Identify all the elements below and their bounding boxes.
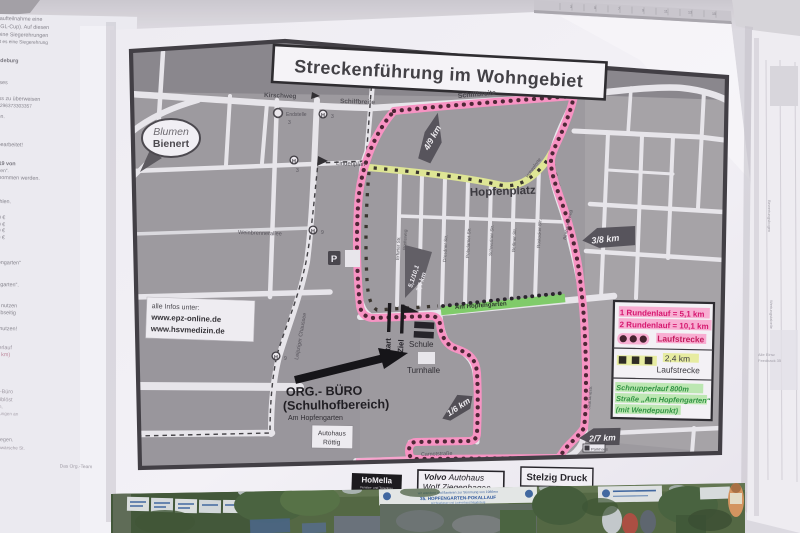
- svg-text:Kirschweg: Kirschweg: [264, 92, 297, 100]
- svg-text:Turnhalle: Turnhalle: [407, 366, 441, 375]
- svg-text:Parkhaus: Parkhaus: [591, 447, 608, 452]
- svg-text:ren.: ren.: [0, 114, 5, 120]
- svg-text:Schnupperlauf 800m: Schnupperlauf 800m: [616, 383, 689, 394]
- svg-text:Röttig: Röttig: [323, 439, 341, 446]
- svg-text:Stelzig Druck: Stelzig Druck: [526, 472, 588, 484]
- svg-text:Schule: Schule: [409, 340, 434, 349]
- svg-text:Alle Einw.: Alle Einw.: [758, 352, 775, 357]
- svg-text:(Schulhofbereich): (Schulhofbereich): [283, 397, 389, 413]
- svg-text:nlagen,: nlagen,: [0, 404, 3, 410]
- svg-text:7: 7: [618, 7, 620, 11]
- svg-text:beschluss zu überweisen: beschluss zu überweisen: [0, 96, 40, 103]
- svg-text:3: 3: [570, 5, 572, 9]
- svg-text:3: 3: [331, 114, 334, 120]
- svg-text:Das Org.-Team: Das Org.-Team: [60, 463, 93, 470]
- svg-text:genommen werden.: genommen werden.: [0, 175, 40, 182]
- svg-text:Feedback 35: Feedback 35: [758, 358, 782, 363]
- svg-text:Ch.) nutzen: Ch.) nutzen: [0, 303, 17, 310]
- svg-text:(MD, IGL-Cup). Auf diesen: (MD, IGL-Cup). Auf diesen: [0, 24, 49, 31]
- svg-text:(mit Wendepunkt): (mit Wendepunkt): [616, 405, 679, 415]
- svg-text:nupperlauf: nupperlauf: [0, 345, 12, 352]
- svg-text:13: 13: [688, 11, 692, 15]
- svg-text:Autohaus: Autohaus: [318, 430, 347, 437]
- svg-text:ORG.- BÜRO: ORG.- BÜRO: [286, 383, 363, 399]
- svg-text:15: 15: [712, 12, 716, 16]
- svg-text:2/7 km: 2/7 km: [588, 432, 617, 443]
- svg-text:Endstelle: Endstelle: [286, 112, 307, 118]
- svg-text:Laufstrecke: Laufstrecke: [657, 364, 701, 375]
- svg-text:1 Rundenlauf = 5,1 km: 1 Rundenlauf = 5,1 km: [620, 308, 705, 319]
- svg-text:zur Laufteilnahme eine: zur Laufteilnahme eine: [0, 16, 42, 23]
- svg-text:H: H: [311, 229, 315, 235]
- svg-text:d möblöst: d möblöst: [0, 397, 13, 404]
- svg-text:11: 11: [664, 10, 668, 14]
- svg-text:g bearbeitet!: g bearbeitet!: [0, 142, 24, 149]
- svg-text:se zu legen.: se zu legen.: [0, 437, 13, 444]
- svg-text:Lindenplan: Lindenplan: [336, 161, 366, 168]
- svg-text:005327296373303357: 005327296373303357: [0, 103, 32, 110]
- svg-text:Ziel: Ziel: [396, 339, 406, 353]
- svg-text:Wertungstabelle: Wertungstabelle: [769, 300, 774, 330]
- svg-text:2,4 km: 2,4 km: [665, 353, 690, 364]
- svg-text:Laufstrecke: Laufstrecke: [657, 333, 705, 344]
- svg-text:H: H: [321, 113, 325, 119]
- svg-text:d benutzen!: d benutzen!: [0, 326, 18, 333]
- svg-text:keine Siegerehrungen: keine Siegerehrungen: [0, 32, 48, 39]
- svg-text:,00 €: ,00 €: [0, 228, 5, 234]
- svg-text:Carnotstraße: Carnotstraße: [421, 451, 453, 458]
- svg-text:pfengarten“.: pfengarten“.: [0, 282, 19, 289]
- svg-text:smeldungen an: smeldungen an: [0, 411, 19, 417]
- svg-text:Bienert: Bienert: [153, 138, 190, 150]
- svg-text:H: H: [292, 159, 296, 165]
- svg-text:Org.-Büro: Org.-Büro: [0, 389, 13, 396]
- svg-text:3: 3: [288, 120, 291, 126]
- svg-text:2019 von: 2019 von: [0, 161, 16, 168]
- svg-text:Hopfenplatz: Hopfenplatz: [470, 185, 536, 199]
- svg-text:H: H: [274, 355, 278, 361]
- svg-text:2 Rundenlauf = 10,1 km: 2 Rundenlauf = 10,1 km: [619, 320, 708, 331]
- svg-text:zahlen.: zahlen.: [0, 199, 11, 205]
- svg-text:,00 €: ,00 €: [0, 235, 5, 241]
- svg-text:9: 9: [321, 230, 324, 236]
- svg-text:Bewertungsbogen: Bewertungsbogen: [767, 200, 772, 232]
- svg-text:HoMella: HoMella: [361, 475, 393, 485]
- svg-text:9: 9: [284, 356, 287, 362]
- svg-text:Schilfbreite: Schilfbreite: [340, 98, 375, 106]
- svg-text:uses: uses: [0, 80, 8, 86]
- svg-text:,00 €: ,00 €: [0, 215, 5, 221]
- svg-text:P: P: [331, 254, 338, 265]
- svg-text:gdeburg: gdeburg: [0, 58, 19, 64]
- svg-text:Blumen: Blumen: [153, 126, 189, 138]
- svg-text:5: 5: [594, 6, 596, 10]
- svg-text:g, Hohenwarsche St.: g, Hohenwarsche St.: [0, 445, 25, 451]
- svg-text:9: 9: [642, 9, 644, 13]
- svg-text:opfengarten“: opfengarten“: [0, 260, 21, 267]
- svg-text:/ 10,1 km): / 10,1 km): [0, 352, 10, 359]
- svg-text:arten“.: arten“.: [0, 168, 9, 174]
- svg-text:Am Hopfengarten: Am Hopfengarten: [288, 415, 343, 422]
- svg-text:3: 3: [296, 168, 299, 174]
- svg-text:halbseitig: halbseitig: [0, 310, 16, 317]
